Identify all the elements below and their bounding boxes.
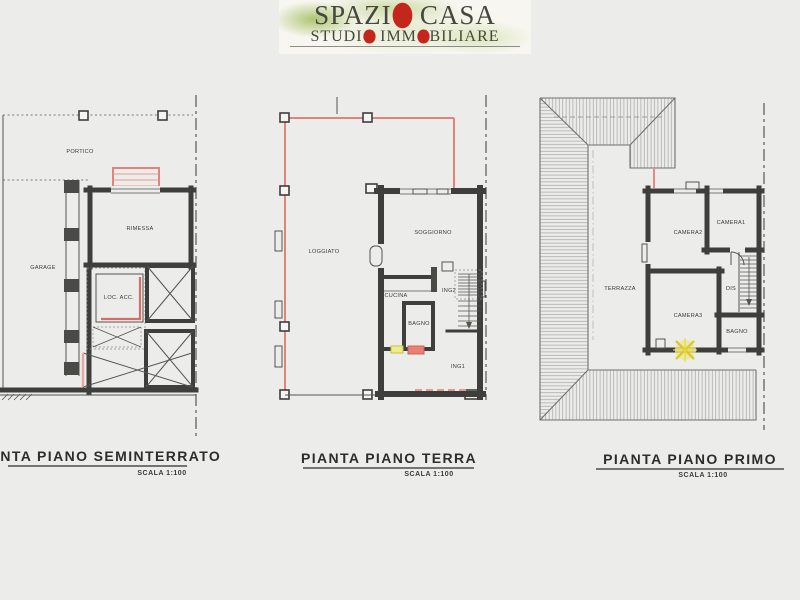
portico-pillar: [79, 111, 88, 120]
room-label-loggiato: LOGGIATO: [309, 249, 340, 255]
floorplans-drawing: PORTICO GARAGE RIMESSA LOC. ACC. PIANTA …: [0, 0, 800, 600]
room-label-garage: GARAGE: [30, 265, 55, 271]
plan-scale-primo: SCALA 1:100: [678, 472, 727, 479]
plan-title-seminterrato: PIANTA PIANO SEMINTERRATO: [0, 448, 221, 464]
floorplan-terra: LOGGIATO SOGGIORNO CUCINA BAGNO ING2 ING…: [275, 95, 486, 478]
room-label-dis: DIS: [726, 286, 736, 292]
room-label-terrazza: TERRAZZA: [604, 286, 636, 292]
door-swing: [731, 252, 744, 265]
room-label-bagno: BAGNO: [408, 321, 430, 327]
room-label-cucina: CUCINA: [385, 293, 408, 299]
room-label-ing2: ING2: [442, 288, 456, 294]
room-label-camera1: CAMERA1: [717, 220, 746, 226]
room-label-ing1: ING1: [451, 364, 465, 370]
room-label-loc-acc: LOC. ACC.: [104, 295, 134, 301]
scanned-floorplan-page: SPAZIO CASA STUDIO IMMOBILIARE: [0, 0, 800, 600]
room-label-bagno-primo: BAGNO: [726, 329, 748, 335]
yellow-highlight-star: [673, 338, 697, 362]
floorplan-primo: TERRAZZA CAMERA2 CAMERA1 CAMERA3 DIS BAG…: [540, 98, 784, 479]
floorplan-seminterrato: PORTICO GARAGE RIMESSA LOC. ACC. PIANTA …: [0, 95, 221, 477]
room-label-portico: PORTICO: [66, 149, 94, 155]
room-label-rimessa: RIMESSA: [127, 226, 154, 232]
plan-title-primo: PIANTA PIANO PRIMO: [603, 451, 777, 467]
yellow-door-highlight: [391, 346, 403, 353]
room-label-camera2: CAMERA2: [674, 230, 703, 236]
plan-title-terra: PIANTA PIANO TERRA: [301, 450, 477, 466]
room-label-soggiorno: SOGGIORNO: [414, 230, 452, 236]
plan-scale-seminterrato: SCALA 1:100: [137, 470, 186, 477]
room-label-camera3: CAMERA3: [674, 313, 703, 319]
staircase: [739, 252, 758, 312]
crossed-shaft-boxes: [83, 266, 193, 387]
plan-scale-terra: SCALA 1:100: [404, 471, 453, 478]
red-door-highlight: [408, 346, 424, 354]
portico-pillar: [158, 111, 167, 120]
